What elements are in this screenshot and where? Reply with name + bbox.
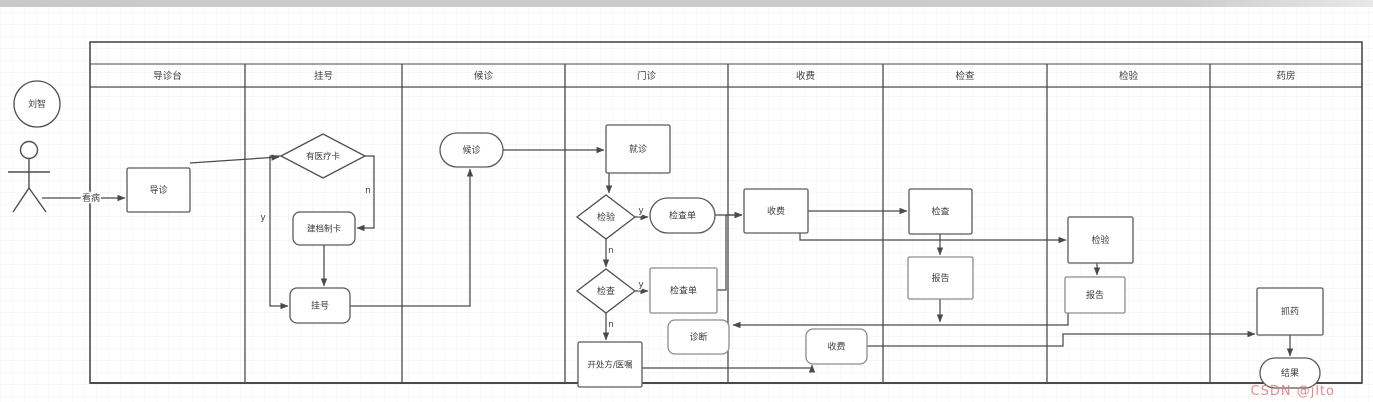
edge-label-labtest-no: n [608,246,614,256]
node-label-exam-task: 检查 [931,206,949,218]
node-label-result-end: 结果 [1281,367,1299,379]
stick-figure-actor [8,142,50,213]
edge-label-card-yes: y [260,213,266,223]
lane-header-outpatient: 门诊 [637,70,657,82]
csdn-watermark: CSDN @jlto [1251,384,1335,399]
node-label-report-task-2: 报告 [1086,289,1104,301]
node-label-guide-task: 导诊 [149,184,167,196]
node-label-report-task-1: 报告 [931,272,949,284]
lane-header-registration: 挂号 [314,70,333,82]
node-label-register-task: 挂号 [311,300,329,312]
lane-header-payment: 收费 [796,70,815,82]
node-label-prescription-task: 开处方/医嘱 [587,360,632,371]
lane-header-pharmacy: 药房 [1276,70,1295,82]
edge-order2-to-payment [717,215,742,290]
edge-label-exam-no: n [608,320,614,330]
node-label-test-order-stadium: 检查单 [669,210,696,222]
flowchart-canvas: 导诊台挂号候诊门诊收费检查检验药房看病nyynyn导诊有医疗卡建档制卡挂号候诊就… [0,0,1373,402]
node-label-consult-task: 就诊 [629,143,647,155]
edge-card-yes [270,156,288,306]
node-label-payment-task-2: 收费 [827,341,845,353]
edge-guide-to-card [190,157,279,163]
edge-label-labtest-yes: y [638,206,644,216]
lane-header-examination: 检查 [955,70,975,82]
edge-prescription-to-pay2 [642,365,812,368]
node-label-lab-test-task: 检验 [1091,234,1109,246]
actor-name-label: 刘智 [28,98,46,110]
node-label-wait-task: 候诊 [462,144,480,156]
lane-header-lab-test: 检验 [1119,70,1139,82]
lane-header-guide-desk: 导诊台 [153,70,182,82]
stick-figure-head [21,142,38,159]
edge-report2-to-diagnosis [733,313,1068,325]
node-label-lab-test-decision: 检验 [597,211,615,223]
edge-label-see-doctor: 看病 [82,192,100,204]
node-label-diagnosis-task: 诊断 [689,331,707,343]
edge-label-exam-yes: y [638,280,644,290]
node-label-exam-decision: 检查 [597,285,615,297]
lane-header-waiting: 候诊 [474,70,494,82]
node-label-exam-order-task: 检查单 [670,285,697,297]
stick-figure-right-leg [29,188,46,212]
node-label-create-card-task: 建档制卡 [307,224,342,235]
edge-pay2-to-dispense [867,334,1255,346]
node-label-has-medical-card-decision: 有医疗卡 [306,151,341,162]
node-label-payment-task-1: 收费 [767,205,785,217]
edge-label-card-no: n [365,186,371,196]
node-label-dispense-task: 抓药 [1281,306,1299,318]
stick-figure-left-leg [13,188,29,212]
swimlane-diagram: 导诊台挂号候诊门诊收费检查检验药房看病nyynyn导诊有医疗卡建档制卡挂号候诊就… [0,0,1373,402]
